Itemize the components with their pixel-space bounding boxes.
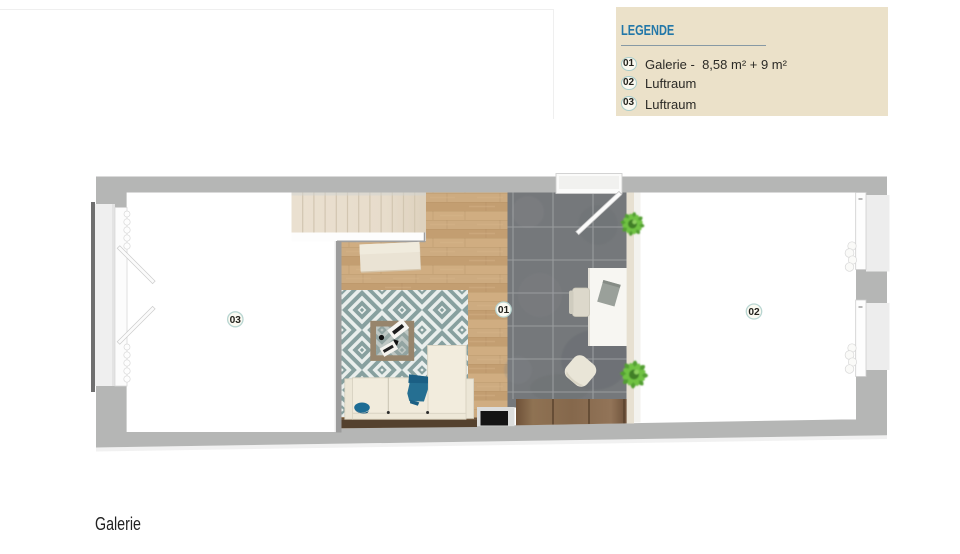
svg-text:02: 02 [748, 307, 760, 318]
svg-text:03: 03 [230, 315, 242, 326]
svg-text:01: 01 [498, 305, 510, 316]
